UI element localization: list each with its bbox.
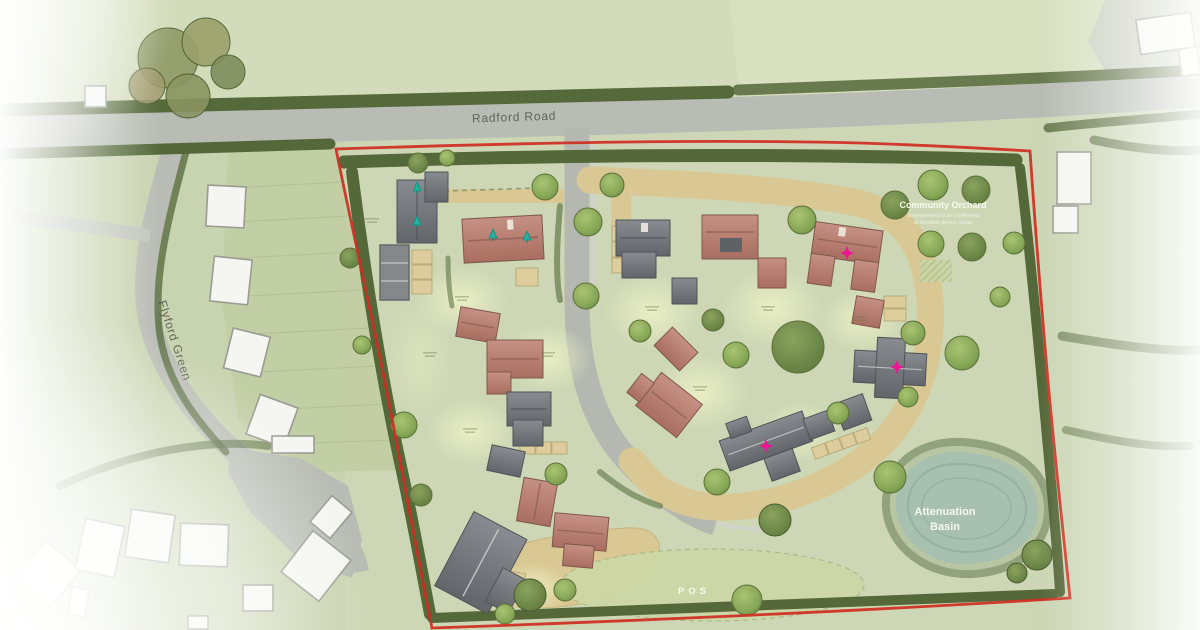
garage-building <box>758 258 786 288</box>
pos-label: POS <box>678 586 710 597</box>
community-orchard-label: Community Orchard <box>899 200 986 210</box>
attenuation-basin-label-2: Basin <box>930 521 960 533</box>
parking-court <box>380 245 409 300</box>
orchard-hatch-area <box>920 260 952 282</box>
attenuation-basin-label-1: Attenuation <box>914 506 975 518</box>
house-building <box>462 215 544 263</box>
house-building <box>456 307 501 343</box>
garage-building <box>672 278 697 304</box>
garage-building <box>852 296 884 328</box>
community-orchard-note-1: arrangement to be confirmed <box>907 213 979 219</box>
existing-building <box>210 256 252 305</box>
existing-building <box>206 185 246 228</box>
radford-road-label: Radford Road <box>472 109 557 126</box>
house-building <box>516 477 557 526</box>
house-building <box>702 215 758 259</box>
site-plan-drawing: Radford Road Flyford Green Community Orc… <box>0 0 1200 630</box>
masterplan-canvas: Radford Road Flyford Green Community Orc… <box>0 0 1200 630</box>
community-orchard-note-2: at detailed design stage <box>913 220 972 226</box>
